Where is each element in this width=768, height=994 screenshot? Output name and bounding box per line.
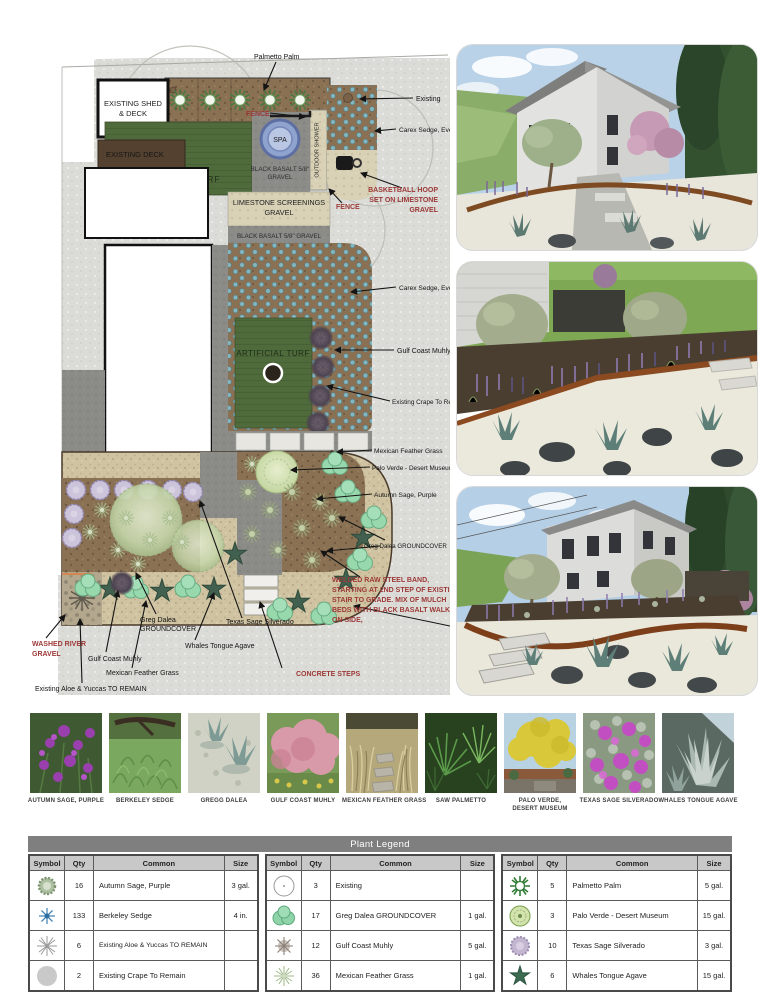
qty: 3 <box>302 871 331 900</box>
callout-palmetto: Palmetto Palm <box>254 54 300 61</box>
basalt2-label: BLACK BASALT 5/8" GRAVEL <box>237 233 322 240</box>
qty: 6 <box>65 931 94 960</box>
photo-caption-autumn-sage: AUTUMN SAGE, PURPLE <box>26 797 106 805</box>
header-symbol: Symbol <box>30 856 65 870</box>
photo-texas-sage <box>583 713 655 793</box>
header-size: Size <box>698 856 730 870</box>
callout-mexfg-b: Mexican Feather Grass <box>106 670 179 677</box>
symbol-palo-verde-icon <box>508 904 532 928</box>
legend-row-berkeley-sedge: 133 Berkeley Sedge 4 in. <box>30 901 257 931</box>
callout-texas: Texas Sage Silverado <box>226 619 294 626</box>
legend-group-1: Symbol Qty Common Size 16 Autumn Sage, P… <box>28 854 259 992</box>
photo-caption-mexican-feather-grass: MEXICAN FEATHER GRASS <box>342 797 422 805</box>
basketball-hoop <box>336 156 353 170</box>
symbol-existing-icon <box>272 874 296 898</box>
symbol-existing-crape-icon <box>35 964 59 988</box>
red-steps: CONCRETE STEPS <box>296 671 361 678</box>
qty: 36 <box>302 961 331 990</box>
size <box>225 961 257 990</box>
red-bball2: SET ON LIMESTONE <box>369 197 438 204</box>
legend-row-texas-sage: 10 Texas Sage Silverado 3 gal. <box>503 931 730 961</box>
callout-carex2: Carex Sedge, Evercolor <box>399 285 450 292</box>
size: 1 gal. <box>461 961 493 990</box>
common: Texas Sage Silverado <box>567 931 698 960</box>
size: 4 in. <box>225 901 257 930</box>
qty: 5 <box>538 871 567 900</box>
legend-row-whales-tongue: 6 Whales Tongue Agave 15 gal. <box>503 961 730 990</box>
deck-label: EXISTING DECK <box>106 150 164 159</box>
size: 3 gal. <box>698 931 730 960</box>
header-common: Common <box>331 856 462 870</box>
header-symbol: Symbol <box>503 856 538 870</box>
legend-row-existing: 3 Existing <box>267 871 494 901</box>
fire-pit <box>264 364 282 382</box>
callout-existing: Existing <box>416 96 441 103</box>
callout-dalea-b2: GROUNDCOVER <box>140 626 196 633</box>
legend-row-autumn-sage: 16 Autumn Sage, Purple 3 gal. <box>30 871 257 901</box>
common: Existing Crape To Remain <box>94 961 225 990</box>
red-washed2: GRAVEL <box>32 651 61 658</box>
size: 15 gal. <box>698 961 730 990</box>
symbol-autumn-sage-icon <box>35 874 59 898</box>
size: 5 gal. <box>698 871 730 900</box>
red-fence2: FENCE <box>336 204 360 211</box>
photo-gulf-coast-muhly <box>267 713 339 793</box>
common: Greg Dalea GROUNDCOVER <box>331 901 462 930</box>
plant-legend-title: Plant Legend <box>28 836 732 852</box>
photo-caption-gregg-dalea: GREGG DALEA <box>184 797 264 805</box>
callout-sage-r: Autumn Sage, Purple <box>374 492 437 499</box>
limestone-label-2: GRAVEL <box>264 208 293 217</box>
qty: 10 <box>538 931 567 960</box>
header-common: Common <box>94 856 225 870</box>
common: Mexican Feather Grass <box>331 961 462 990</box>
photo-palo-verde <box>504 713 576 793</box>
header-size: Size <box>461 856 493 870</box>
photo-caption-saw-palmetto: SAW PALMETTO <box>421 797 501 805</box>
size: 1 gal. <box>461 901 493 930</box>
red-washed1: WASHED RIVER <box>32 641 86 648</box>
rendering-2 <box>457 262 757 475</box>
photo-whales-tongue-agave <box>662 713 734 793</box>
size: 15 gal. <box>698 901 730 930</box>
photo-caption-texas-sage: TEXAS SAGE SILVERADO <box>579 797 659 805</box>
callout-aloe: Existing Aloe & Yuccas TO REMAIN <box>35 686 147 693</box>
red-bball3: GRAVEL <box>409 207 438 214</box>
callout-carex1: Carex Sedge, Evercolor <box>399 127 450 134</box>
header-common: Common <box>567 856 698 870</box>
common: Whales Tongue Agave <box>567 961 698 990</box>
callout-mexfg-r: Mexican Feather Grass <box>374 448 443 455</box>
legend-row-existing-aloe: 6 Existing Aloe & Yuccas TO REMAIN <box>30 931 257 961</box>
callout-muhly-r: Gulf Coast Muhly <box>397 348 450 355</box>
size: 5 gal. <box>461 931 493 960</box>
common: Existing Aloe & Yuccas TO REMAIN <box>94 931 225 960</box>
legend-row-palmetto-palm: 5 Palmetto Palm 5 gal. <box>503 871 730 901</box>
callout-dalea-b1: Greg Dalea <box>140 617 176 624</box>
callout-crape: Existing Crape To Remain <box>392 399 450 406</box>
symbol-gulf-muhly-icon <box>272 934 296 958</box>
common: Autumn Sage, Purple <box>94 871 225 900</box>
basalt1-label-1: BLACK BASALT 5/8" <box>251 166 310 173</box>
photo-gregg-dalea <box>188 713 260 793</box>
callout-dalea-r: Greg Dalea GROUNDCOVER <box>364 543 447 550</box>
common: Palmetto Palm <box>567 871 698 900</box>
photo-caption-gulf-coast-muhly: GULF COAST MUHLY <box>263 797 343 805</box>
legend-row-existing-crape: 2 Existing Crape To Remain <box>30 961 257 990</box>
photo-mexican-feather-grass <box>346 713 418 793</box>
size <box>225 931 257 960</box>
existing-patio-structure <box>85 168 208 238</box>
size: 3 gal. <box>225 871 257 900</box>
size <box>461 871 493 900</box>
qty: 17 <box>302 901 331 930</box>
symbol-mexican-fg-icon <box>272 964 296 988</box>
header-symbol: Symbol <box>267 856 302 870</box>
photo-caption-palo-verde: PALO VERDE, DESERT MUSEUM <box>500 797 580 813</box>
site-plan: EXISTING SHED & DECK EXISTING DECK ARTIF… <box>30 40 450 700</box>
legend-row-palo-verde: 3 Palo Verde - Desert Museum 15 gal. <box>503 901 730 931</box>
outdoor-shower-label: OUTDOOR SHOWER <box>315 122 321 177</box>
photo-saw-palmetto <box>425 713 497 793</box>
common: Berkeley Sedge <box>94 901 225 930</box>
common: Gulf Coast Muhly <box>331 931 462 960</box>
photo-caption-whales-tongue: WHALES TONGUE AGAVE <box>658 797 738 805</box>
rendering-1 <box>457 45 757 250</box>
legend-row-greg-dalea: 17 Greg Dalea GROUNDCOVER 1 gal. <box>267 901 494 931</box>
shed-label-1: EXISTING SHED <box>104 99 163 108</box>
site-plan-drawing: EXISTING SHED & DECK EXISTING DECK ARTIF… <box>30 40 450 700</box>
qty: 16 <box>65 871 94 900</box>
shed-label-2: & DECK <box>119 109 147 118</box>
red-fence1: FENCE <box>246 111 270 118</box>
legend-group-2: Symbol Qty Common Size 3 Existing 17 Gre… <box>265 854 496 992</box>
symbol-texas-sage-icon <box>508 934 532 958</box>
common: Existing <box>331 871 462 900</box>
symbol-greg-dalea-icon <box>272 904 296 928</box>
symbol-existing-aloe-icon <box>35 934 59 958</box>
legend-group-3: Symbol Qty Common Size 5 Palmetto Palm 5… <box>501 854 732 992</box>
legend-row-gulf-coast-muhly: 12 Gulf Coast Muhly 5 gal. <box>267 931 494 961</box>
legend-row-mexican-feather-grass: 36 Mexican Feather Grass 1 gal. <box>267 961 494 990</box>
plant-legend: Plant Legend Symbol Qty Common Size 16 A… <box>28 836 732 992</box>
photo-berkeley-sedge <box>109 713 181 793</box>
header-qty: Qty <box>538 856 567 870</box>
red-welded2: STARTING AT 2ND STEP OF EXISTING <box>332 587 450 594</box>
symbol-palmetto-icon <box>508 874 532 898</box>
common: Palo Verde - Desert Museum <box>567 901 698 930</box>
callout-whales: Whales Tongue Agave <box>185 643 255 650</box>
basalt1-label-2: GRAVEL <box>267 174 293 181</box>
red-bball1: BASKETBALL HOOP <box>368 187 438 194</box>
red-welded4: BEDS WITH BLACK BASALT WALKWAY <box>332 607 450 614</box>
photo-autumn-sage <box>30 713 102 793</box>
callout-palo: Palo Verde - Desert Museum <box>372 465 450 472</box>
qty: 12 <box>302 931 331 960</box>
symbol-whales-tongue-icon <box>508 964 532 988</box>
header-size: Size <box>225 856 257 870</box>
header-qty: Qty <box>65 856 94 870</box>
carex-bed-upper <box>327 85 377 150</box>
qty: 6 <box>538 961 567 990</box>
red-welded1: WELDED RAW STEEL BAND, <box>332 577 429 584</box>
header-qty: Qty <box>302 856 331 870</box>
photo-caption-berkeley-sedge: BERKELEY SEDGE <box>105 797 185 805</box>
red-welded5: ON SIDE, <box>332 617 363 624</box>
qty: 133 <box>65 901 94 930</box>
callout-muhly-b: Gulf Coast Muhly <box>88 656 142 663</box>
symbol-berkeley-sedge-icon <box>35 904 59 928</box>
turf2-label: ARTIFICIAL TURF <box>236 349 310 358</box>
house-footprint <box>105 245 212 461</box>
spa-label: SPA <box>273 137 287 144</box>
qty: 3 <box>538 901 567 930</box>
qty: 2 <box>65 961 94 990</box>
red-welded3: STAIR TO GRADE. MIX OF MULCH <box>332 597 446 604</box>
rendering-3 <box>457 487 757 695</box>
limestone-label-1: LIMESTONE SCREENINGS <box>233 198 325 207</box>
muhly-front <box>110 571 134 595</box>
